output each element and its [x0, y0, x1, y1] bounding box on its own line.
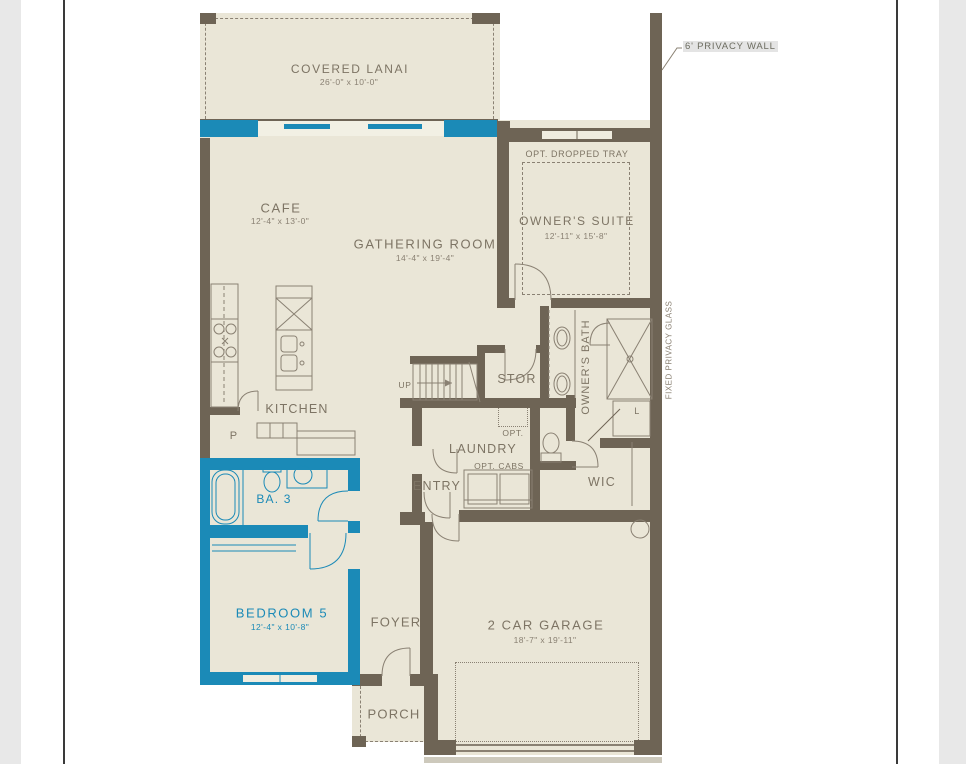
- label-bedroom5: BEDROOM 5: [236, 606, 328, 621]
- label-opt-dropped-tray: OPT. DROPPED TRAY: [526, 149, 629, 159]
- label-bedroom5-dims: 12'-4" x 10'-8": [251, 622, 309, 632]
- floor-plan-page: COVERED LANAI 26'-0" x 10'-0" CAFE 12'-4…: [0, 0, 966, 764]
- label-stor: STOR: [497, 372, 536, 386]
- label-wic: WIC: [588, 475, 616, 489]
- label-laundry: LAUNDRY: [449, 442, 517, 456]
- label-garage: 2 CAR GARAGE: [488, 618, 605, 633]
- label-covered-lanai-dims: 26'-0" x 10'-0": [320, 77, 378, 87]
- label-owners-suite-dims: 12'-11" x 15'-8": [545, 231, 608, 241]
- label-privacy-wall: 6' PRIVACY WALL: [683, 41, 778, 52]
- stairs: [413, 362, 480, 402]
- label-cafe-dims: 12'-4" x 13'-0": [251, 216, 309, 226]
- kitchen-island: [276, 286, 312, 390]
- door-arcs-blue: [310, 491, 348, 569]
- label-opt-cabs: OPT. CABS: [474, 461, 524, 471]
- label-cafe: CAFE: [260, 201, 301, 216]
- label-kitchen: KITCHEN: [265, 402, 328, 416]
- label-gathering-room: GATHERING ROOM: [354, 237, 497, 252]
- label-owners-bath: OWNER'S BATH: [580, 319, 592, 414]
- washer-dryer: [464, 470, 532, 508]
- label-opt: OPT.: [502, 428, 523, 438]
- label-owners-suite: OWNER'S SUITE: [519, 214, 635, 228]
- fixtures-layer: [0, 0, 966, 764]
- label-garage-dims: 18'-7" x 19'-11": [514, 635, 577, 645]
- cooktop: [211, 319, 238, 362]
- label-covered-lanai: COVERED LANAI: [291, 62, 409, 76]
- label-bath3: BA. 3: [256, 492, 291, 506]
- water-heater: [631, 520, 649, 538]
- label-porch: PORCH: [368, 707, 421, 722]
- label-linen: L: [634, 406, 640, 416]
- privacy-wall-leader-line: [662, 48, 682, 70]
- label-foyer: FOYER: [371, 615, 422, 630]
- label-entry: ENTRY: [413, 479, 461, 493]
- label-up: UP: [398, 380, 411, 390]
- label-pantry: P: [230, 430, 239, 442]
- label-gathering-room-dims: 14'-4" x 19'-4": [396, 253, 454, 263]
- label-fixed-privacy-glass: FIXED PRIVACY GLASS: [665, 301, 674, 400]
